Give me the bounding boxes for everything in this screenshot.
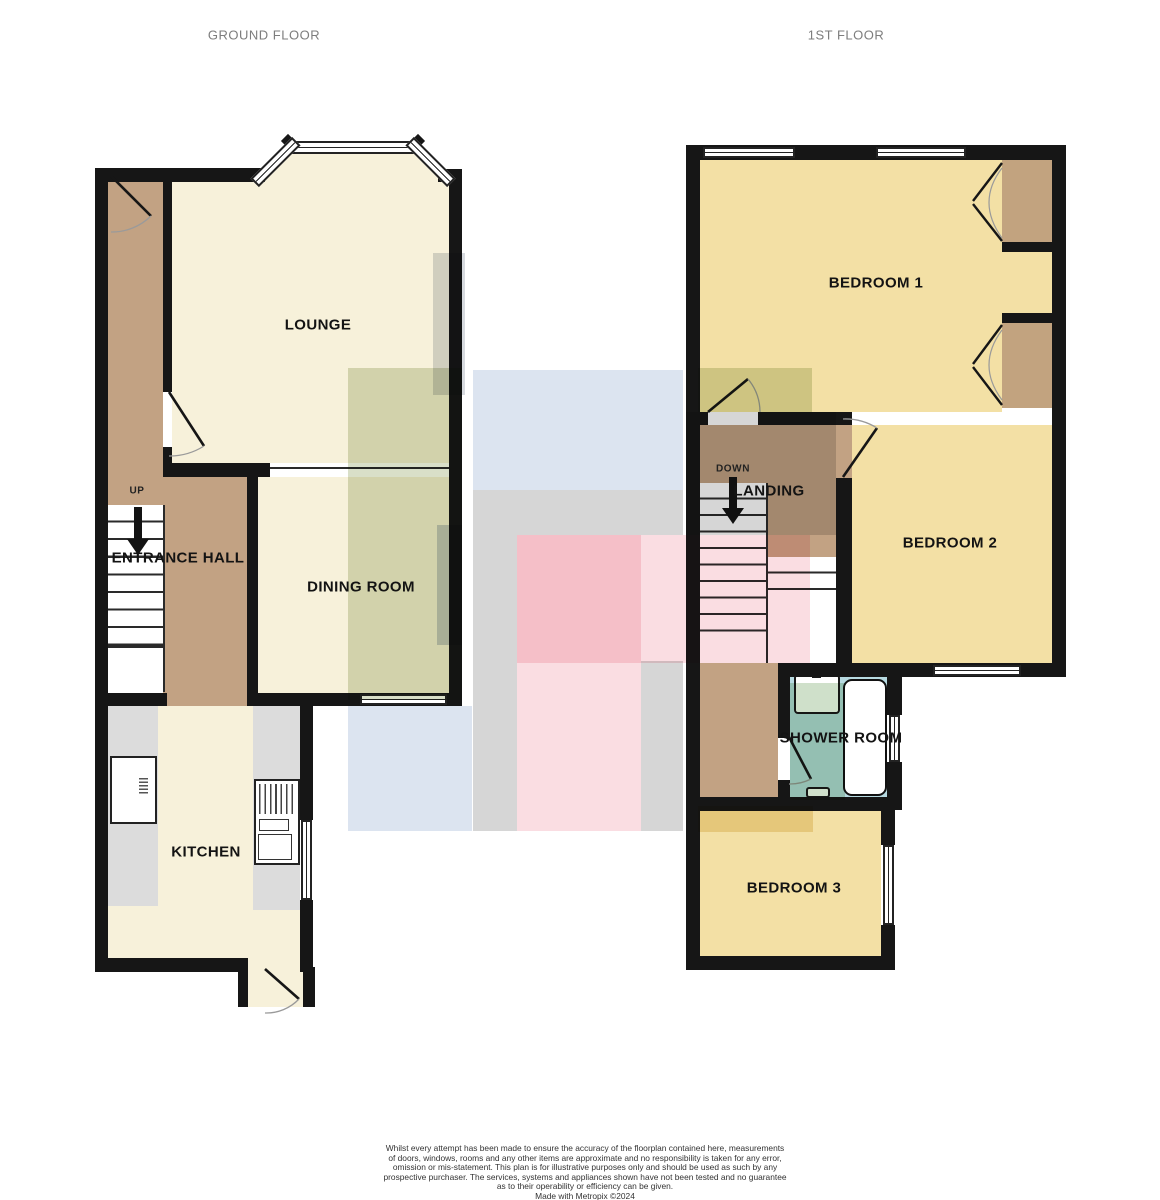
highlight-overlay	[698, 368, 812, 412]
highlight-overlay	[698, 806, 813, 832]
wall	[887, 663, 902, 715]
ground-floor-title: GROUND FLOOR	[208, 28, 320, 43]
bedroom2-window-icon	[933, 665, 1021, 676]
lounge-label: LOUNGE	[285, 317, 352, 334]
wall	[1052, 145, 1066, 677]
wall	[778, 663, 1066, 677]
disclaimer-credit: Made with Metropix ©2024	[365, 1192, 805, 1200]
highlight-overlay	[437, 525, 462, 645]
wall	[881, 811, 895, 845]
highlight-overlay	[473, 490, 683, 535]
wall	[238, 972, 248, 1007]
landing-lower-floor	[700, 663, 778, 810]
bedroom1-label: BEDROOM 1	[829, 275, 923, 292]
wall	[163, 182, 172, 392]
wall	[95, 168, 108, 972]
highlight-overlay	[348, 706, 472, 831]
sink-basin-icon	[258, 834, 292, 860]
down-label: DOWN	[716, 464, 750, 475]
highlight-overlay	[517, 535, 641, 831]
highlight-overlay	[473, 370, 683, 490]
bedroom1-window-icon	[876, 147, 966, 158]
bedroom3-label: BEDROOM 3	[747, 880, 841, 897]
wall	[778, 663, 790, 738]
bedroom3-window-icon	[883, 845, 894, 925]
wall	[247, 477, 258, 693]
bedroom1-recess-floor	[1002, 252, 1052, 313]
highlight-overlay	[686, 412, 836, 535]
kitchen-lobby-floor	[248, 958, 303, 1007]
hob-icon	[110, 756, 157, 824]
wall	[1002, 313, 1066, 323]
wall	[163, 463, 270, 477]
bay-window-icon	[291, 141, 415, 154]
floorplan-canvas: GROUND FLOOR 1ST FLOOR	[0, 0, 1160, 1200]
stairs-base	[108, 646, 163, 693]
disclaimer-text: Whilst every attempt has been made to en…	[365, 1144, 805, 1200]
wardrobe-floor	[1002, 160, 1052, 242]
wall	[300, 706, 313, 820]
bedroom1-window-icon	[703, 147, 795, 158]
shower-room-label: SHOWER ROOM	[780, 730, 903, 747]
entrance-hall-label: ENTRANCE HALL	[112, 550, 245, 567]
hob-grill-icon	[139, 778, 148, 795]
draining-board-icon	[259, 784, 295, 814]
highlight-overlay	[433, 253, 465, 395]
first-floor-title: 1ST FLOOR	[808, 28, 885, 43]
wall	[303, 967, 315, 1007]
wall	[836, 478, 852, 663]
wall	[836, 412, 852, 425]
highlight-overlay	[641, 661, 683, 831]
entrance-hall-floor-upper	[108, 182, 163, 470]
bedroom2-doorway-floor	[836, 425, 852, 478]
landing-label: LANDING	[733, 483, 804, 500]
bedroom2-label: BEDROOM 2	[903, 535, 997, 552]
highlight-overlay	[473, 535, 517, 831]
kitchen-label: KITCHEN	[171, 844, 240, 861]
up-arrow-icon	[134, 507, 142, 541]
wall	[95, 958, 248, 972]
sink-top-icon	[259, 819, 289, 831]
wall	[686, 956, 895, 970]
wall	[1002, 242, 1066, 252]
wall	[95, 693, 167, 706]
hall-kitchen-opening-floor	[167, 693, 247, 707]
kitchen-window-icon	[301, 820, 312, 900]
dining-room-label: DINING ROOM	[307, 579, 415, 596]
wardrobe-floor	[1002, 323, 1052, 408]
wall	[95, 168, 265, 182]
wall	[300, 900, 313, 972]
up-label: UP	[129, 486, 144, 497]
